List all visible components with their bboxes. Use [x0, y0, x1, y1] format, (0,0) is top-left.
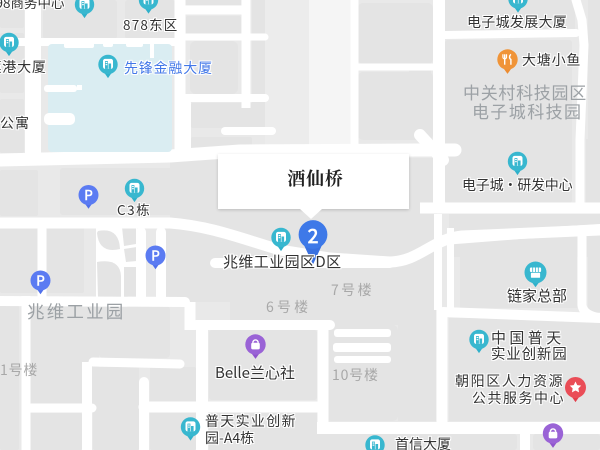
svg-text:2: 2: [308, 220, 319, 249]
